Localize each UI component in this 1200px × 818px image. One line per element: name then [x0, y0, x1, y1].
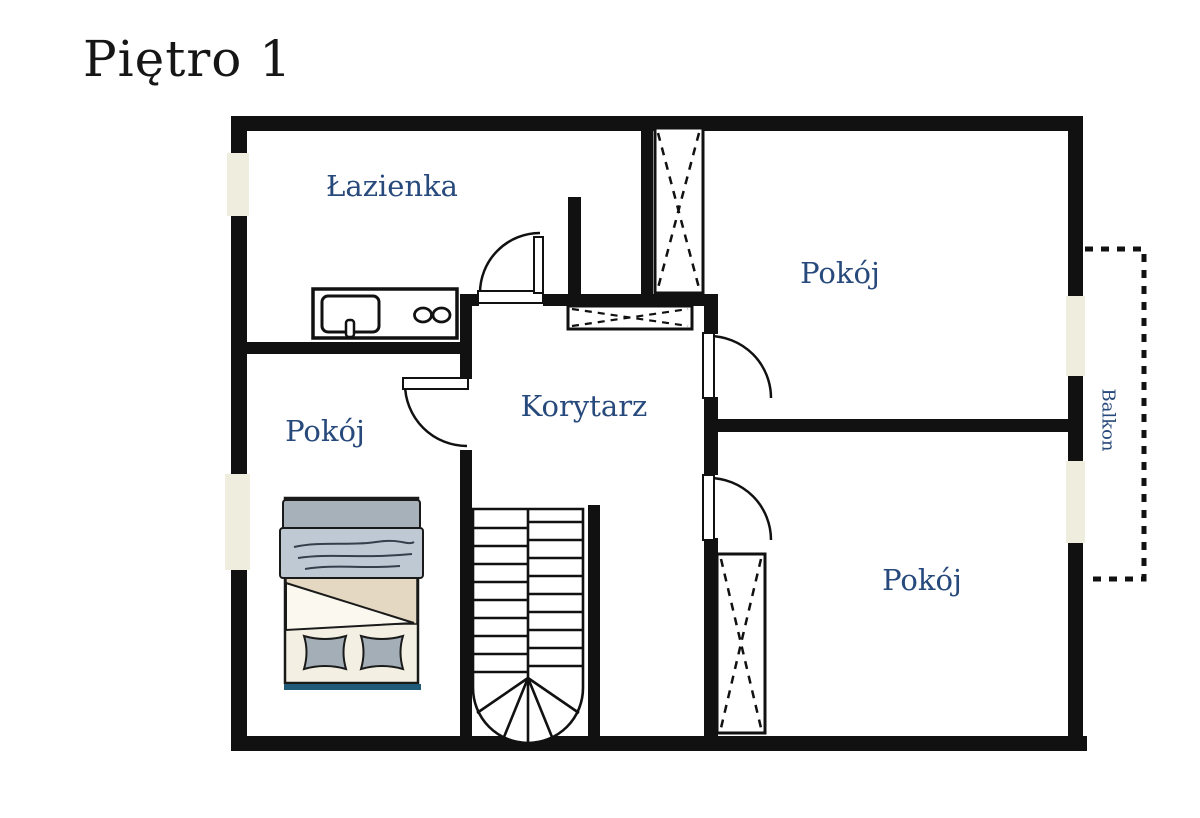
wall-staircase-right: [588, 505, 600, 736]
doors: [403, 233, 771, 540]
wall-corridor-right-a: [704, 294, 718, 334]
bathroom-counter: [313, 289, 457, 338]
wardrobe-bottom-right-room: [717, 554, 765, 733]
door-swing-arc: [405, 384, 467, 446]
window-left-bottom: [225, 474, 250, 570]
floor-plan-canvas: Piętro 1: [0, 0, 1200, 818]
room-label-balcony: Balkon: [1098, 388, 1119, 451]
window-right-bottom: [1066, 461, 1085, 543]
door-leaf: [703, 475, 714, 540]
door-room-bottom-right: [703, 475, 771, 540]
sink-faucet: [346, 320, 354, 337]
double-bed: [280, 498, 423, 690]
room-label-corridor: Korytarz: [521, 389, 648, 423]
bed-blanket: [280, 528, 423, 578]
bed-blanket-top: [283, 500, 420, 530]
door-swing-arc: [709, 336, 771, 398]
room-label-bathroom: Łazienka: [326, 169, 458, 203]
door-swing-arc: [480, 233, 540, 293]
outer-wall-right: [1068, 116, 1083, 736]
room-label-bottom-right: Pokój: [882, 563, 962, 597]
window-left-top: [227, 153, 249, 216]
door-bathroom: [478, 233, 543, 303]
wall-corridor-right-b: [704, 397, 718, 475]
wall-corridor-left-upper: [460, 294, 472, 379]
door-room-left: [403, 378, 468, 446]
door-leaf: [703, 333, 714, 398]
room-label-top-right: Pokój: [800, 256, 880, 290]
wall-corridor-left-lower: [460, 450, 472, 736]
bed-headboard-line: [284, 684, 421, 690]
door-leaf: [403, 378, 468, 389]
wall-wardrobe-left: [641, 129, 653, 306]
bed-pillow-left: [304, 636, 346, 669]
wall-right-rooms-divider: [704, 419, 1070, 432]
basin-oval-left: [415, 308, 432, 322]
door-room-top-right: [703, 333, 771, 398]
outer-wall-bottom: [231, 736, 1087, 751]
sideboard-corridor: [568, 306, 692, 329]
window-right-top: [1066, 296, 1085, 376]
basin-oval-right: [433, 308, 450, 322]
door-swing-arc: [709, 478, 771, 540]
bed-pillow-right: [361, 636, 403, 669]
staircase: [473, 509, 583, 743]
wall-bathroom-bottom: [231, 342, 471, 354]
room-label-left: Pokój: [285, 414, 365, 448]
wall-bathroom-stub: [568, 197, 581, 297]
wardrobe-top-right-room: [655, 128, 703, 293]
door-leaf: [534, 237, 543, 293]
